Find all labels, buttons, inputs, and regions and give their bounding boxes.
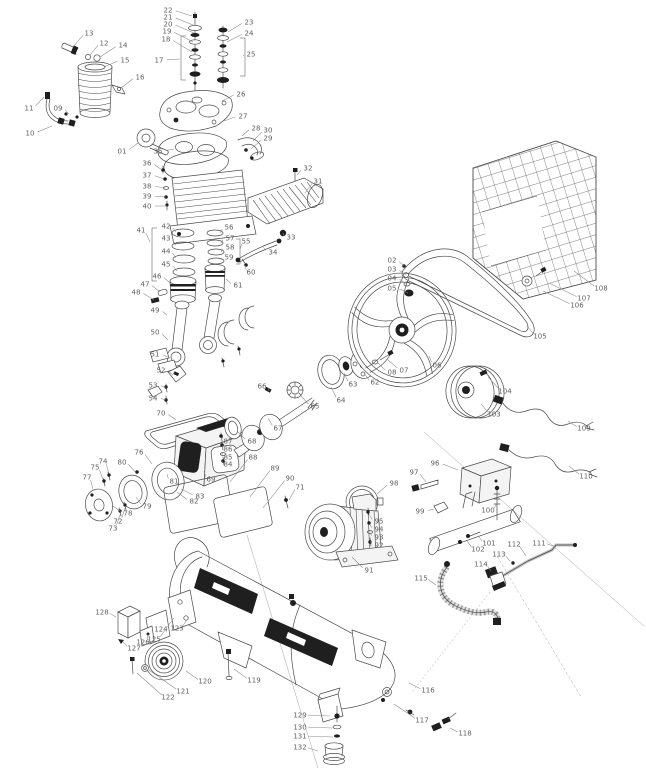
crankshaft [234, 382, 317, 457]
part-number-63: 63 [349, 381, 358, 389]
part-number-24: 24 [245, 30, 254, 38]
part-number-114: 114 [474, 561, 488, 569]
part-number-48: 48 [132, 289, 141, 297]
leader-line-99 [428, 509, 434, 511]
leader-line-128 [110, 613, 116, 617]
part-number-44: 44 [162, 248, 171, 256]
part-number-85: 85 [224, 454, 233, 462]
leader-line-22 [176, 11, 192, 16]
bracket-17 [181, 36, 186, 80]
part-number-76: 76 [135, 449, 144, 457]
part-number-25: 25 [247, 51, 256, 59]
part-number-07: 07 [400, 367, 409, 375]
part-number-18: 18 [162, 36, 171, 44]
part-number-123: 123 [170, 625, 183, 633]
part-number-54: 54 [149, 395, 158, 403]
part-number-109: 109 [577, 425, 590, 433]
part-number-129: 129 [293, 712, 306, 720]
part-number-27: 27 [239, 113, 248, 121]
drain-valve [431, 713, 456, 731]
leader-line-45 [173, 266, 177, 271]
part-number-17: 17 [155, 57, 164, 65]
part-number-102: 102 [471, 546, 484, 554]
wheel-assembly [130, 642, 232, 680]
part-number-103: 103 [487, 411, 500, 419]
part-number-55: 55 [242, 238, 251, 246]
leader-line-25 [243, 55, 244, 56]
part-number-61: 61 [234, 282, 243, 290]
part-number-127: 127 [127, 645, 140, 653]
part-number-66: 66 [258, 383, 267, 391]
part-number-35: 35 [154, 148, 163, 156]
leader-line-16 [121, 79, 133, 88]
part-number-122: 122 [161, 694, 174, 702]
leader-line-37 [155, 176, 164, 179]
part-number-90: 90 [286, 475, 295, 483]
part-number-47: 47 [141, 281, 150, 289]
valve-stack-right [217, 26, 229, 88]
leader-line-97 [420, 474, 426, 482]
part-number-26: 26 [237, 91, 246, 99]
part-number-29: 29 [264, 135, 273, 143]
part-number-40: 40 [143, 203, 152, 211]
leader-line-41 [146, 233, 150, 242]
leader-line-70 [168, 414, 176, 420]
leader-line-116 [409, 683, 420, 689]
bracket-25 [240, 38, 245, 76]
part-number-64: 64 [337, 397, 346, 405]
leader-line-13 [73, 35, 83, 47]
aftercooler [236, 168, 326, 262]
part-number-42: 42 [162, 223, 171, 231]
part-number-96: 96 [431, 460, 440, 468]
leader-line-35 [166, 149, 174, 151]
exploded-parts-diagram: 2221201918172324251312141516110910012627… [0, 0, 646, 768]
part-number-71: 71 [296, 484, 305, 492]
part-number-83: 83 [196, 493, 205, 501]
part-number-03: 03 [388, 266, 397, 274]
part-number-124: 124 [154, 626, 168, 634]
piston-large [170, 277, 196, 304]
part-number-06: 06 [433, 362, 442, 370]
leader-line-02 [399, 262, 404, 266]
leader-line-130 [308, 727, 332, 728]
leader-line-10 [38, 126, 52, 132]
part-number-75: 75 [91, 464, 100, 472]
leader-line-106 [543, 291, 570, 304]
leader-line-74 [106, 464, 109, 474]
part-number-37: 37 [143, 172, 152, 180]
part-number-60: 60 [247, 269, 256, 277]
part-number-81: 81 [170, 478, 179, 486]
part-number-77: 77 [83, 474, 92, 482]
leader-line-83 [181, 489, 192, 495]
part-number-53: 53 [149, 382, 158, 390]
part-number-89: 89 [271, 465, 280, 473]
part-number-112: 112 [507, 541, 520, 549]
part-number-12: 12 [100, 40, 109, 48]
part-number-73: 73 [109, 525, 118, 533]
leader-line-49 [162, 311, 167, 315]
part-number-99: 99 [416, 508, 425, 516]
part-number-23: 23 [245, 19, 254, 27]
part-number-118: 118 [458, 730, 471, 738]
leader-line-115 [428, 579, 436, 585]
part-number-43: 43 [162, 235, 171, 243]
part-number-116: 116 [421, 687, 435, 695]
valve-plate-and-gaskets [158, 133, 229, 179]
part-number-14: 14 [119, 42, 128, 50]
part-number-107: 107 [577, 295, 590, 303]
power-cables [493, 395, 597, 477]
leader-line-76 [145, 454, 152, 464]
leader-line-14 [100, 47, 116, 57]
part-number-31: 31 [314, 178, 323, 186]
part-number-132: 132 [293, 744, 306, 752]
leader-line-11 [35, 97, 44, 106]
part-number-08: 08 [388, 369, 397, 377]
cylinder-head [160, 91, 233, 132]
leader-line-113 [506, 556, 510, 561]
leader-line-24 [227, 34, 242, 42]
part-number-36: 36 [143, 160, 152, 168]
part-number-15: 15 [121, 57, 130, 65]
part-number-80: 80 [118, 459, 127, 467]
part-number-108: 108 [594, 285, 607, 293]
belt-guard [473, 141, 596, 299]
leader-line-47 [152, 286, 160, 292]
part-number-10: 10 [26, 130, 35, 138]
part-number-70: 70 [157, 410, 166, 418]
leader-line-120 [186, 671, 198, 679]
part-number-117: 117 [415, 717, 428, 725]
leader-line-78 [113, 506, 121, 512]
part-number-86: 86 [224, 446, 233, 454]
part-number-50: 50 [151, 329, 160, 337]
leader-line-71 [289, 490, 295, 500]
part-number-68: 68 [248, 438, 257, 446]
part-number-01: 01 [118, 148, 127, 156]
part-number-95: 95 [375, 518, 384, 526]
part-number-45: 45 [162, 261, 171, 269]
part-number-11: 11 [25, 105, 34, 113]
part-number-65: 65 [311, 403, 320, 411]
part-number-04: 04 [388, 275, 397, 283]
part-number-113: 113 [492, 551, 505, 559]
part-number-84: 84 [224, 461, 233, 469]
part-number-19: 19 [163, 28, 172, 36]
part-number-13: 13 [85, 30, 94, 38]
leader-line-119 [234, 669, 247, 678]
part-number-28: 28 [252, 125, 261, 133]
part-number-05: 05 [388, 285, 397, 293]
diagram-canvas: 2221201918172324251312141516110910012627… [0, 0, 646, 768]
leader-line-30 [253, 132, 262, 141]
leader-line-118 [450, 728, 457, 732]
part-number-88: 88 [249, 454, 258, 462]
leader-line-19 [174, 32, 193, 42]
part-number-41: 41 [137, 227, 146, 235]
part-number-56: 56 [225, 224, 234, 232]
part-number-33: 33 [287, 234, 296, 242]
connecting-rods [150, 294, 254, 373]
air-tank [170, 538, 414, 722]
part-number-62: 62 [371, 379, 380, 387]
part-number-69: 69 [207, 476, 216, 484]
leader-line-50 [162, 334, 168, 340]
part-number-74: 74 [99, 458, 108, 466]
leader-line-48 [143, 293, 154, 300]
part-number-131: 131 [293, 733, 306, 741]
part-number-78: 78 [124, 510, 133, 518]
part-number-38: 38 [143, 183, 152, 191]
air-filter-assembly [62, 43, 125, 118]
part-number-115: 115 [414, 575, 427, 583]
part-number-09: 09 [54, 105, 63, 113]
part-number-110: 110 [579, 473, 592, 481]
part-number-105: 105 [533, 333, 546, 341]
part-number-67: 67 [274, 425, 283, 433]
leader-line-12 [90, 45, 98, 55]
part-number-91: 91 [365, 567, 374, 575]
discharge-elbow [238, 138, 265, 162]
part-number-130: 130 [293, 724, 306, 732]
part-number-106: 106 [570, 302, 584, 310]
part-number-16: 16 [136, 74, 145, 82]
part-number-121: 121 [176, 688, 189, 696]
part-number-97: 97 [410, 469, 419, 477]
leader-line-21 [176, 18, 193, 25]
part-number-58: 58 [226, 244, 235, 252]
part-number-98: 98 [390, 480, 399, 488]
part-number-100: 100 [481, 507, 494, 515]
part-number-128: 128 [95, 609, 108, 617]
part-number-57: 57 [226, 235, 235, 243]
leader-line-01 [129, 143, 138, 149]
leader-line-75 [99, 470, 103, 479]
part-number-39: 39 [143, 193, 152, 201]
leader-line-61 [226, 279, 231, 283]
part-number-104: 104 [498, 388, 512, 396]
part-number-93: 93 [375, 534, 384, 542]
part-number-94: 94 [375, 526, 384, 534]
part-number-111: 111 [532, 540, 545, 548]
part-number-46: 46 [153, 273, 162, 281]
part-number-59: 59 [225, 254, 234, 262]
part-number-92: 92 [375, 542, 384, 550]
part-number-119: 119 [247, 677, 260, 685]
part-number-49: 49 [151, 307, 160, 315]
leader-line-46 [164, 278, 170, 283]
leader-line-17 [167, 59, 180, 60]
part-number-52: 52 [157, 367, 166, 375]
part-number-87: 87 [224, 438, 233, 446]
leader-line-80 [128, 464, 136, 473]
part-number-51: 51 [151, 351, 160, 359]
leader-line-98 [377, 485, 387, 494]
part-number-02: 02 [388, 257, 397, 265]
leader-line-32 [297, 170, 301, 175]
leader-line-28 [242, 130, 249, 136]
cylinder-block [161, 166, 256, 244]
leader-line-96 [443, 464, 458, 470]
part-number-120: 120 [198, 678, 211, 686]
leader-line-23 [228, 24, 242, 32]
leader-line-131 [308, 736, 333, 737]
leader-line-36 [154, 164, 162, 170]
part-number-34: 34 [269, 249, 278, 257]
part-number-79: 79 [143, 503, 152, 511]
part-number-32: 32 [304, 165, 313, 173]
part-number-30: 30 [264, 127, 273, 135]
